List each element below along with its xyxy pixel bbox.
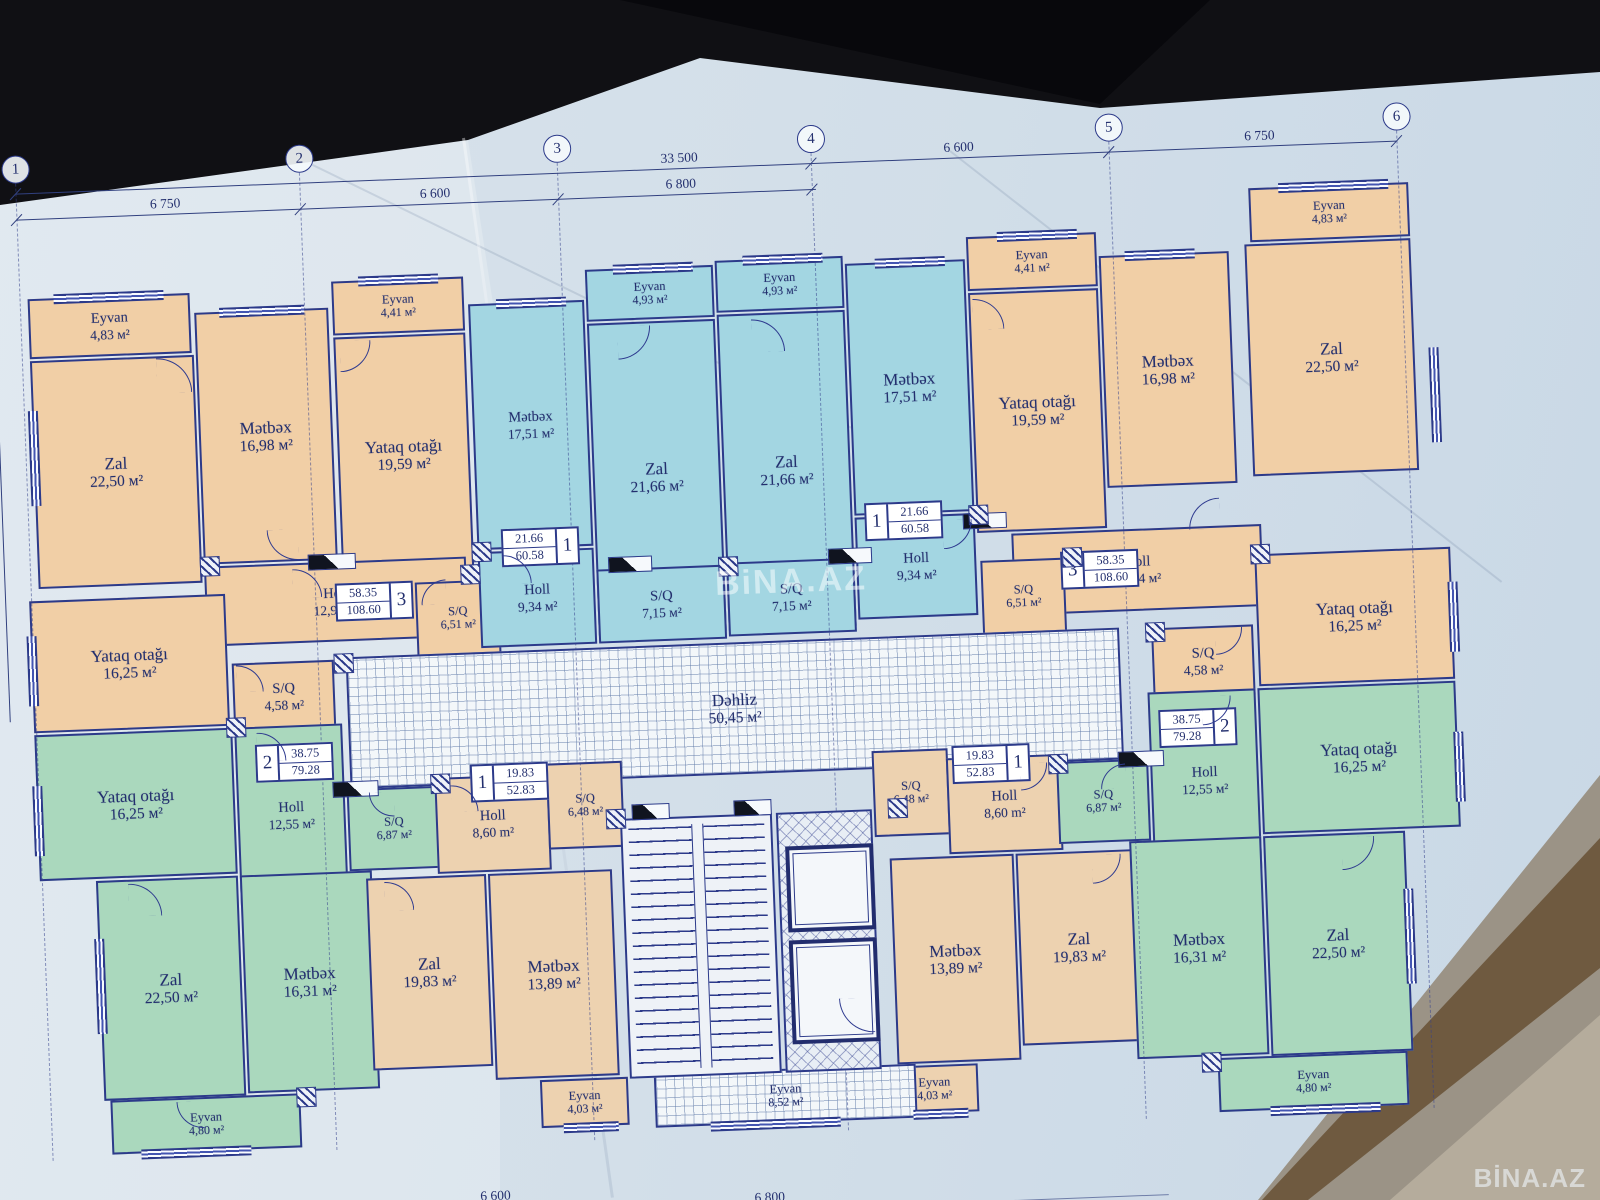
room-label: Holl (278, 799, 304, 816)
room-area: 13,89 м² (929, 959, 983, 978)
room-label: Zal (1320, 339, 1343, 359)
apartment-number: 1 (555, 528, 578, 563)
room-zal: Zal22,50 м² (1244, 238, 1419, 476)
room-eyvan: Eyvan4,41 м² (966, 232, 1098, 291)
column-symbol (471, 542, 492, 563)
room-area: 16,98 м² (239, 436, 293, 455)
apartment-area-total: 52.83 (494, 781, 547, 799)
room-mtbx: Mətbəx17,51 м² (845, 259, 975, 515)
room-area: 16,31 м² (1173, 948, 1227, 967)
room-area: 22,50 м² (90, 472, 144, 491)
room-area: 6,51 м² (441, 618, 477, 633)
apartment-tag: 19.8352.831 (951, 743, 1030, 784)
room-mtbx: Mətbəx17,51 м² (468, 300, 593, 550)
apartment-areas: 21.6660.58 (888, 502, 941, 538)
vent-shaft-symbol (733, 799, 772, 816)
apartment-area-total: 60.58 (889, 520, 942, 538)
room-label: Mətbəx (239, 417, 292, 438)
dimension-label: 6 800 (665, 175, 696, 192)
room-label: Zal (1067, 929, 1090, 949)
dimension-label: 6 800 (754, 1189, 785, 1200)
room-label: S/Q (1191, 645, 1214, 662)
room-label: Mətbəx (508, 409, 553, 427)
apartment-area-living: 58.35 (1084, 551, 1137, 570)
room-label: Zal (418, 954, 441, 974)
apartment-tag: 58.35108.603 (335, 581, 414, 622)
apartment-area-total: 79.28 (280, 761, 333, 779)
room-area: 21,66 м² (760, 470, 814, 489)
apartment-area-living: 21.66 (503, 529, 556, 548)
dimension-label: 6 600 (943, 139, 974, 156)
column-symbol (887, 798, 908, 819)
room-label: Zal (104, 453, 127, 473)
room-label: Mətbəx (1173, 929, 1226, 950)
room-label: Holl (991, 788, 1017, 805)
room-label: Zal (159, 970, 182, 990)
apartment-number: 1 (472, 766, 495, 801)
window-symbol (564, 1121, 619, 1133)
vent-shaft-symbol (308, 553, 357, 571)
room-area: 4,93 м² (632, 293, 668, 308)
room-label: Mətbəx (929, 940, 982, 961)
apartment-areas: 58.35108.60 (1084, 551, 1137, 587)
apartment-tag: 121.6660.58 (864, 500, 943, 541)
room-eyvan: Eyvan4,41 м² (331, 277, 465, 336)
room-area: 4,03 м² (567, 1102, 603, 1117)
room-area: 16,98 м² (1142, 369, 1196, 388)
room-area: 8,60 m² (472, 824, 514, 841)
room-area: 6,87 м² (377, 828, 413, 843)
room-eyvan: Eyvan4,83 м² (28, 293, 192, 359)
room-area: 4,80 м² (1296, 1081, 1332, 1096)
column-symbol (1145, 622, 1166, 643)
staircase (620, 813, 782, 1079)
room-area: 6,51 м² (1006, 596, 1042, 611)
apartment-area-living: 19.83 (494, 764, 547, 783)
column-symbol (1250, 544, 1271, 565)
room-label: Mətbəx (1141, 350, 1194, 371)
floor-plan: BiNA.AZ Eyvan4,83 м²Zal22,50 м²Mətbəx16,… (11, 187, 1478, 1200)
room-area: 4,83 м² (1312, 212, 1348, 227)
window-symbol (1453, 731, 1466, 801)
apartment-area-total: 52.83 (954, 764, 1007, 782)
column-symbol (226, 717, 247, 738)
room-area: 17,51 м² (508, 425, 555, 442)
room-area: 6,87 м² (1086, 801, 1122, 816)
axis-marker: 3 (543, 134, 572, 163)
apartment-tag: 119.8352.83 (470, 762, 549, 803)
apartment-area-living: 58.35 (337, 584, 390, 603)
apartment-area-total: 108.60 (337, 601, 390, 619)
column-symbol (333, 653, 354, 674)
window-symbol (1428, 347, 1442, 442)
room-area: 19,83 м² (403, 972, 457, 991)
room-sq: S/Q6,48 м² (546, 761, 625, 850)
room-eyvan: Eyvan4,80 м² (110, 1093, 302, 1154)
room-label: S/Q (650, 588, 673, 605)
apartment-areas: 19.8352.83 (494, 764, 547, 800)
room-label: Dəhliz (711, 689, 757, 710)
room-area: 16,25 м² (109, 804, 163, 823)
room-area: 16,25 м² (103, 663, 157, 682)
room-area: 4,41 м² (380, 306, 416, 321)
column-symbol (296, 1087, 317, 1108)
room-mtbx: Mətbəx13,89 м² (890, 854, 1022, 1065)
room-yataqota: Yataq otağı16,25 м² (29, 594, 230, 733)
blueprint-photo: BiNA.AZ Eyvan4,83 м²Zal22,50 м²Mətbəx16,… (0, 0, 1600, 1200)
room-area: 21,66 м² (630, 477, 684, 496)
room-area: 19,83 м² (1053, 947, 1107, 966)
column-symbol (200, 556, 221, 577)
room-zal: Zal22,50 м² (1263, 831, 1413, 1056)
room-area: 17,51 м² (883, 387, 937, 406)
room-area: 4,83 м² (90, 326, 130, 343)
room-yataqota: Yataq otağı16,25 м² (1257, 681, 1460, 834)
room-area: 4,93 м² (762, 284, 798, 299)
room-area: 4,41 м² (1014, 261, 1050, 276)
room-yataqota: Yataq otağı16,25 м² (34, 728, 237, 881)
apartment-tag: 38.7579.282 (1158, 707, 1237, 748)
room-label: Mətbəx (527, 955, 580, 976)
room-area: 12,55 м² (268, 815, 315, 832)
room-area: 4,58 м² (264, 696, 304, 713)
room-area: 4,58 м² (1184, 661, 1224, 678)
room-area: 22,50 м² (1305, 357, 1359, 376)
room-label: Zal (775, 452, 798, 472)
room-sq: S/Q6,87 м² (1056, 759, 1151, 844)
watermark-corner: BİNA.AZ (1474, 1163, 1586, 1194)
room-area: 8,52 м² (768, 1095, 804, 1110)
room-zal: Zal22,50 м² (96, 876, 246, 1101)
room-area: 12,55 м² (1182, 780, 1229, 797)
room-mtbx: Mətbəx13,89 м² (488, 869, 620, 1080)
room-label: Holl (1191, 764, 1217, 781)
column-symbol (606, 809, 627, 830)
dimension-label: 6 600 (480, 1187, 511, 1200)
door-arc (1188, 498, 1220, 530)
column-symbol (460, 564, 481, 585)
room-area: 19,59 м² (377, 455, 431, 474)
apartment-area-total: 108.60 (1085, 568, 1138, 586)
room-area: 9,34 м² (518, 598, 558, 615)
apartment-area-living: 38.75 (279, 744, 332, 763)
room-area: 22,50 м² (1312, 943, 1366, 962)
axis-marker: 5 (1094, 113, 1123, 142)
room-area: 19,59 м² (1011, 410, 1065, 429)
apartment-areas: 38.7579.28 (279, 744, 332, 780)
apartment-areas: 19.8352.83 (953, 746, 1006, 782)
room-sq: S/Q6,48 м² (872, 748, 951, 837)
apartment-area-living: 19.83 (953, 746, 1006, 765)
dimension-label: 33 500 (660, 149, 698, 166)
column-symbol (430, 773, 451, 794)
room-sq: S/Q6,51 м² (980, 558, 1067, 635)
apartment-number: 1 (866, 504, 889, 539)
room-area: 7,15 м² (642, 604, 682, 621)
vent-shaft-symbol (608, 555, 653, 573)
room-yataqota: Yataq otağı16,25 м² (1254, 547, 1455, 686)
vent-shaft-symbol (631, 803, 670, 820)
room-area: 13,89 м² (527, 974, 581, 993)
room-area: 50,45 м² (708, 708, 762, 727)
axis-marker: 4 (796, 125, 825, 154)
apartment-area-living: 21.66 (888, 502, 941, 521)
room-label: Zal (645, 459, 668, 479)
dimension-label: 6 600 (419, 185, 450, 202)
axis-marker: 6 (1382, 102, 1411, 131)
column-symbol (1201, 1052, 1222, 1073)
room-area: 4,03 м² (917, 1089, 953, 1104)
room-label: Mətbəx (883, 368, 936, 389)
room-yataqota: Yataq otağı19,59 м² (333, 332, 474, 577)
column-symbol (1048, 754, 1069, 775)
column-symbol (1062, 547, 1083, 568)
elevator (785, 843, 876, 932)
elevator-cab (792, 850, 869, 925)
apartment-areas: 58.35108.60 (337, 584, 390, 620)
room-area: 8,60 m² (984, 804, 1026, 821)
room-label: Holl (524, 582, 550, 599)
room-label: Zal (1326, 925, 1349, 945)
dimension-label: 6 750 (1244, 127, 1275, 144)
room-area: 6,48 м² (568, 805, 604, 820)
room-mtbx: Mətbəx16,31 м² (240, 870, 380, 1093)
room-eyvan: Eyvan4,80 м² (1218, 1051, 1410, 1112)
room-area: 22,50 м² (145, 988, 199, 1007)
apartment-number: 3 (389, 583, 412, 618)
room-label: Eyvan (91, 310, 129, 328)
room-sq: S/Q6,87 м² (347, 786, 442, 871)
room-area: 16,25 м² (1328, 616, 1382, 635)
room-eyvan: Eyvan4,93 м² (585, 265, 715, 322)
apartment-area-total: 79.28 (1161, 728, 1214, 746)
room-mtbx: Mətbəx16,31 м² (1129, 836, 1269, 1059)
room-area: 16,25 м² (1333, 757, 1387, 776)
room-label: Holl (480, 808, 506, 825)
room-label: S/Q (272, 681, 295, 698)
window-symbol (913, 1108, 968, 1120)
room-zal: Zal19,83 м² (1016, 849, 1143, 1045)
room-eyvan: Eyvan4,93 м² (715, 256, 845, 313)
room-label: Mətbəx (283, 963, 336, 984)
window-symbol (1447, 582, 1460, 652)
dimension-label: 6 750 (150, 195, 181, 212)
room-mtbx: Mətbəx16,98 м² (194, 308, 338, 565)
